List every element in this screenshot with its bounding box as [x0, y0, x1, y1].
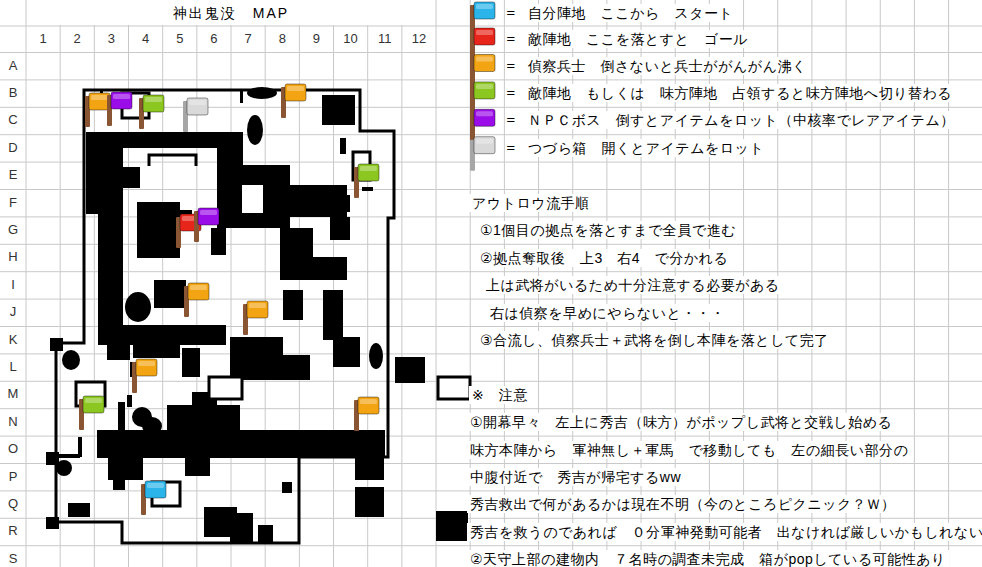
- column-header-7: 7: [231, 31, 265, 46]
- map-wall: [119, 325, 226, 345]
- map-building-outline: [209, 377, 242, 399]
- legend-label-scout-soldier: 偵察兵士 倒さないと兵士ががんがん沸く: [525, 57, 810, 75]
- panel-line-notes-S: ②天守上部の建物内 ７名時の調査未完成 箱がpopしている可能性あり: [467, 550, 949, 567]
- map-wall: [355, 487, 384, 517]
- map-wall: [322, 95, 355, 125]
- map-wall: [323, 290, 343, 340]
- legend-equals-enemy-base-goal: ＝: [500, 30, 522, 48]
- map-flag-orange-B8: [281, 84, 306, 118]
- map-wall: [123, 167, 140, 188]
- map-wall: [333, 337, 360, 367]
- legend-flag-npc-boss: [470, 109, 495, 143]
- legend-label-treasure-box: つづら箱 開くとアイテムをロット: [525, 139, 767, 157]
- map-wall: [46, 452, 59, 465]
- map-wall: [118, 402, 125, 430]
- map-boulder: [62, 350, 80, 370]
- row-header-K: K: [0, 332, 26, 347]
- map-wall: [78, 437, 82, 457]
- legend-equals-scout-soldier: ＝: [500, 57, 522, 75]
- panel-line-notes-N: ①開幕早々 左上に秀吉（味方）がポップし武将と交戦し始める: [467, 413, 895, 431]
- map-flag-red-G5: [176, 214, 201, 248]
- legend-label-enemy-base-goal: 敵陣地 ここを落とすと ゴール: [525, 30, 751, 48]
- row-header-E: E: [0, 167, 26, 182]
- panel-line-notes-M: ※ 注意: [469, 386, 531, 404]
- map-boulder: [125, 292, 151, 322]
- map-wall: [137, 202, 180, 258]
- legend-label-capturable-base: 敵陣地 もしくは 味方陣地 占領すると味方陣地へ切り替わる: [525, 84, 955, 102]
- map-flag-green-E10: [354, 164, 379, 198]
- map-title: 神出鬼没 MAP: [27, 1, 435, 25]
- map-wall: [113, 480, 125, 490]
- map-wall: [230, 337, 283, 380]
- map-wall: [283, 355, 310, 380]
- map-building-outline: [122, 93, 149, 118]
- legend-flag-own-base: [470, 2, 495, 36]
- map-wall: [86, 132, 123, 214]
- map-wall: [395, 357, 425, 383]
- row-header-G: G: [0, 222, 26, 237]
- map-flag-cyan-Q4: [141, 481, 166, 515]
- legend-equals-capturable-base: ＝: [500, 84, 522, 102]
- legend-label-npc-boss: ＮＰＣボス 倒すとアイテムをロット（中核率でレアアイテム）: [525, 111, 958, 129]
- row-header-F: F: [0, 195, 26, 210]
- row-header-J: J: [0, 304, 26, 319]
- map-courtyard-hole: [242, 185, 263, 213]
- row-header-P: P: [0, 469, 26, 484]
- row-header-R: R: [0, 523, 26, 538]
- map-flag-purple-B3: [107, 92, 132, 126]
- row-header-A: A: [0, 58, 26, 73]
- map-wall: [133, 340, 180, 358]
- map-wall: [185, 458, 210, 476]
- row-header-N: N: [0, 414, 26, 429]
- map-boulder: [247, 87, 277, 99]
- map-wall: [283, 290, 303, 320]
- map-flag-orange-L4: [132, 359, 157, 393]
- map-boulder: [444, 380, 460, 396]
- map-wall: [230, 513, 253, 543]
- map-outer-border: [56, 90, 394, 543]
- map-wall: [204, 507, 237, 537]
- panel-line-notes-R: 秀吉を救うのであれば ０分軍神発動可能者 出なければ厳しいかもしれない: [467, 523, 982, 541]
- legend-flag-capturable-base: [470, 82, 495, 116]
- row-header-B: B: [0, 85, 26, 100]
- column-header-10: 10: [334, 31, 368, 46]
- row-header-Q: Q: [0, 496, 26, 511]
- map-flag-green-M2: [79, 396, 104, 430]
- map-wall: [108, 458, 143, 480]
- map-building-outline: [152, 482, 180, 506]
- map-wall: [180, 210, 192, 227]
- map-wall: [102, 132, 243, 148]
- panel-line-notes-O: 味方本陣から 軍神無し＋軍馬 で移動しても 左の細長い部分の: [467, 441, 911, 459]
- map-flag-orange-B3: [85, 93, 110, 127]
- row-header-I: I: [0, 277, 26, 292]
- map-wall: [127, 395, 132, 407]
- column-header-4: 4: [129, 31, 163, 46]
- column-header-1: 1: [26, 31, 60, 46]
- map-wall: [436, 511, 468, 541]
- panel-line-procedure-I: 上は武将がいるため十分注意する必要がある: [483, 276, 783, 294]
- map-boulder: [56, 460, 72, 476]
- legend-equals-own-base: ＝: [500, 4, 522, 22]
- map-wall: [211, 228, 226, 255]
- legend-flag-enemy-base-goal: [470, 28, 495, 62]
- map-boulder: [132, 407, 152, 427]
- map-building-outline: [438, 377, 470, 399]
- map-wall: [100, 90, 103, 103]
- map-flag-orange-J7: [243, 301, 268, 335]
- panel-line-notes-Q: 秀吉救出で何があるかは現在不明（今のところピクニック？Ｗ）: [467, 495, 898, 513]
- map-wall: [332, 195, 350, 212]
- legend-flag-scout-soldier: [470, 55, 495, 89]
- column-header-11: 11: [368, 31, 402, 46]
- map-wall: [50, 338, 63, 351]
- map-wall: [107, 340, 130, 360]
- map-wall: [258, 525, 273, 543]
- legend-label-own-base: 自分陣地 ここから スタート: [525, 4, 736, 22]
- map-boulder: [214, 380, 230, 396]
- column-header-9: 9: [299, 31, 333, 46]
- map-wall: [56, 454, 80, 458]
- legend-flag-treasure-box: [470, 137, 495, 171]
- map-flag-orange-N10: [354, 397, 379, 431]
- map-wall: [230, 165, 290, 228]
- map-wall: [154, 280, 186, 308]
- map-flag-purple-G6: [194, 208, 219, 242]
- map-wall: [130, 362, 137, 377]
- map-boulder: [142, 417, 162, 435]
- column-header-8: 8: [265, 31, 299, 46]
- row-header-C: C: [0, 112, 26, 127]
- map-wall: [98, 214, 123, 345]
- map-wall: [282, 482, 292, 493]
- legend-equals-npc-boss: ＝: [500, 111, 522, 129]
- panel-line-procedure-G: ①1個目の拠点を落とすまで全員で進む: [477, 221, 739, 239]
- map-boulder: [247, 115, 263, 145]
- map-wall: [68, 503, 90, 517]
- map-wall: [182, 348, 200, 377]
- map-flag-gray-B6: [183, 98, 208, 132]
- column-header-2: 2: [60, 31, 94, 46]
- panel-line-procedure-K: ③合流し、偵察兵士＋武将を倒し本陣を落として完了: [477, 331, 832, 349]
- panel-line-procedure-H: ②拠点奪取後 上3 右4 で分かれる: [477, 249, 731, 267]
- map-flag-green-B4: [139, 95, 164, 129]
- row-header-S: S: [0, 551, 26, 566]
- map-wall: [192, 392, 217, 405]
- map-gate-bracket: [149, 155, 196, 166]
- column-header-3: 3: [94, 31, 128, 46]
- row-header-L: L: [0, 359, 26, 374]
- panel-line-notes-P: 中腹付近で 秀吉が帰宅するww: [467, 468, 684, 486]
- row-header-H: H: [0, 249, 26, 264]
- map-wall: [312, 257, 347, 280]
- row-header-D: D: [0, 140, 26, 155]
- map-building-outline: [353, 152, 370, 180]
- column-header-5: 5: [163, 31, 197, 46]
- map-wall: [280, 228, 313, 280]
- row-header-O: O: [0, 441, 26, 456]
- panel-line-procedure-J: 右は偵察を早めにやらないと・・・: [487, 304, 728, 322]
- row-header-M: M: [0, 386, 26, 401]
- map-wall: [355, 458, 384, 480]
- legend-equals-treasure-box: ＝: [500, 139, 522, 157]
- map-wall: [330, 217, 350, 240]
- map-wall: [290, 185, 347, 217]
- spreadsheet-canvas[interactable]: 神出鬼没 MAP 123456789101112 ABCDEFGHIJKLMNO…: [0, 0, 982, 567]
- map-building-outline: [76, 382, 105, 406]
- map-wall: [362, 187, 373, 191]
- map-wall: [217, 148, 243, 228]
- map-wall: [97, 430, 385, 458]
- map-wall: [340, 138, 346, 154]
- column-header-6: 6: [197, 31, 231, 46]
- panel-line-procedure-F: アウトロウ流手順: [469, 194, 593, 212]
- column-header-12: 12: [402, 31, 436, 46]
- map-wall: [240, 90, 243, 103]
- map-flag-orange-I5: [184, 283, 209, 317]
- map-wall: [46, 517, 59, 529]
- map-boulder: [369, 343, 383, 369]
- map-wall: [167, 405, 240, 433]
